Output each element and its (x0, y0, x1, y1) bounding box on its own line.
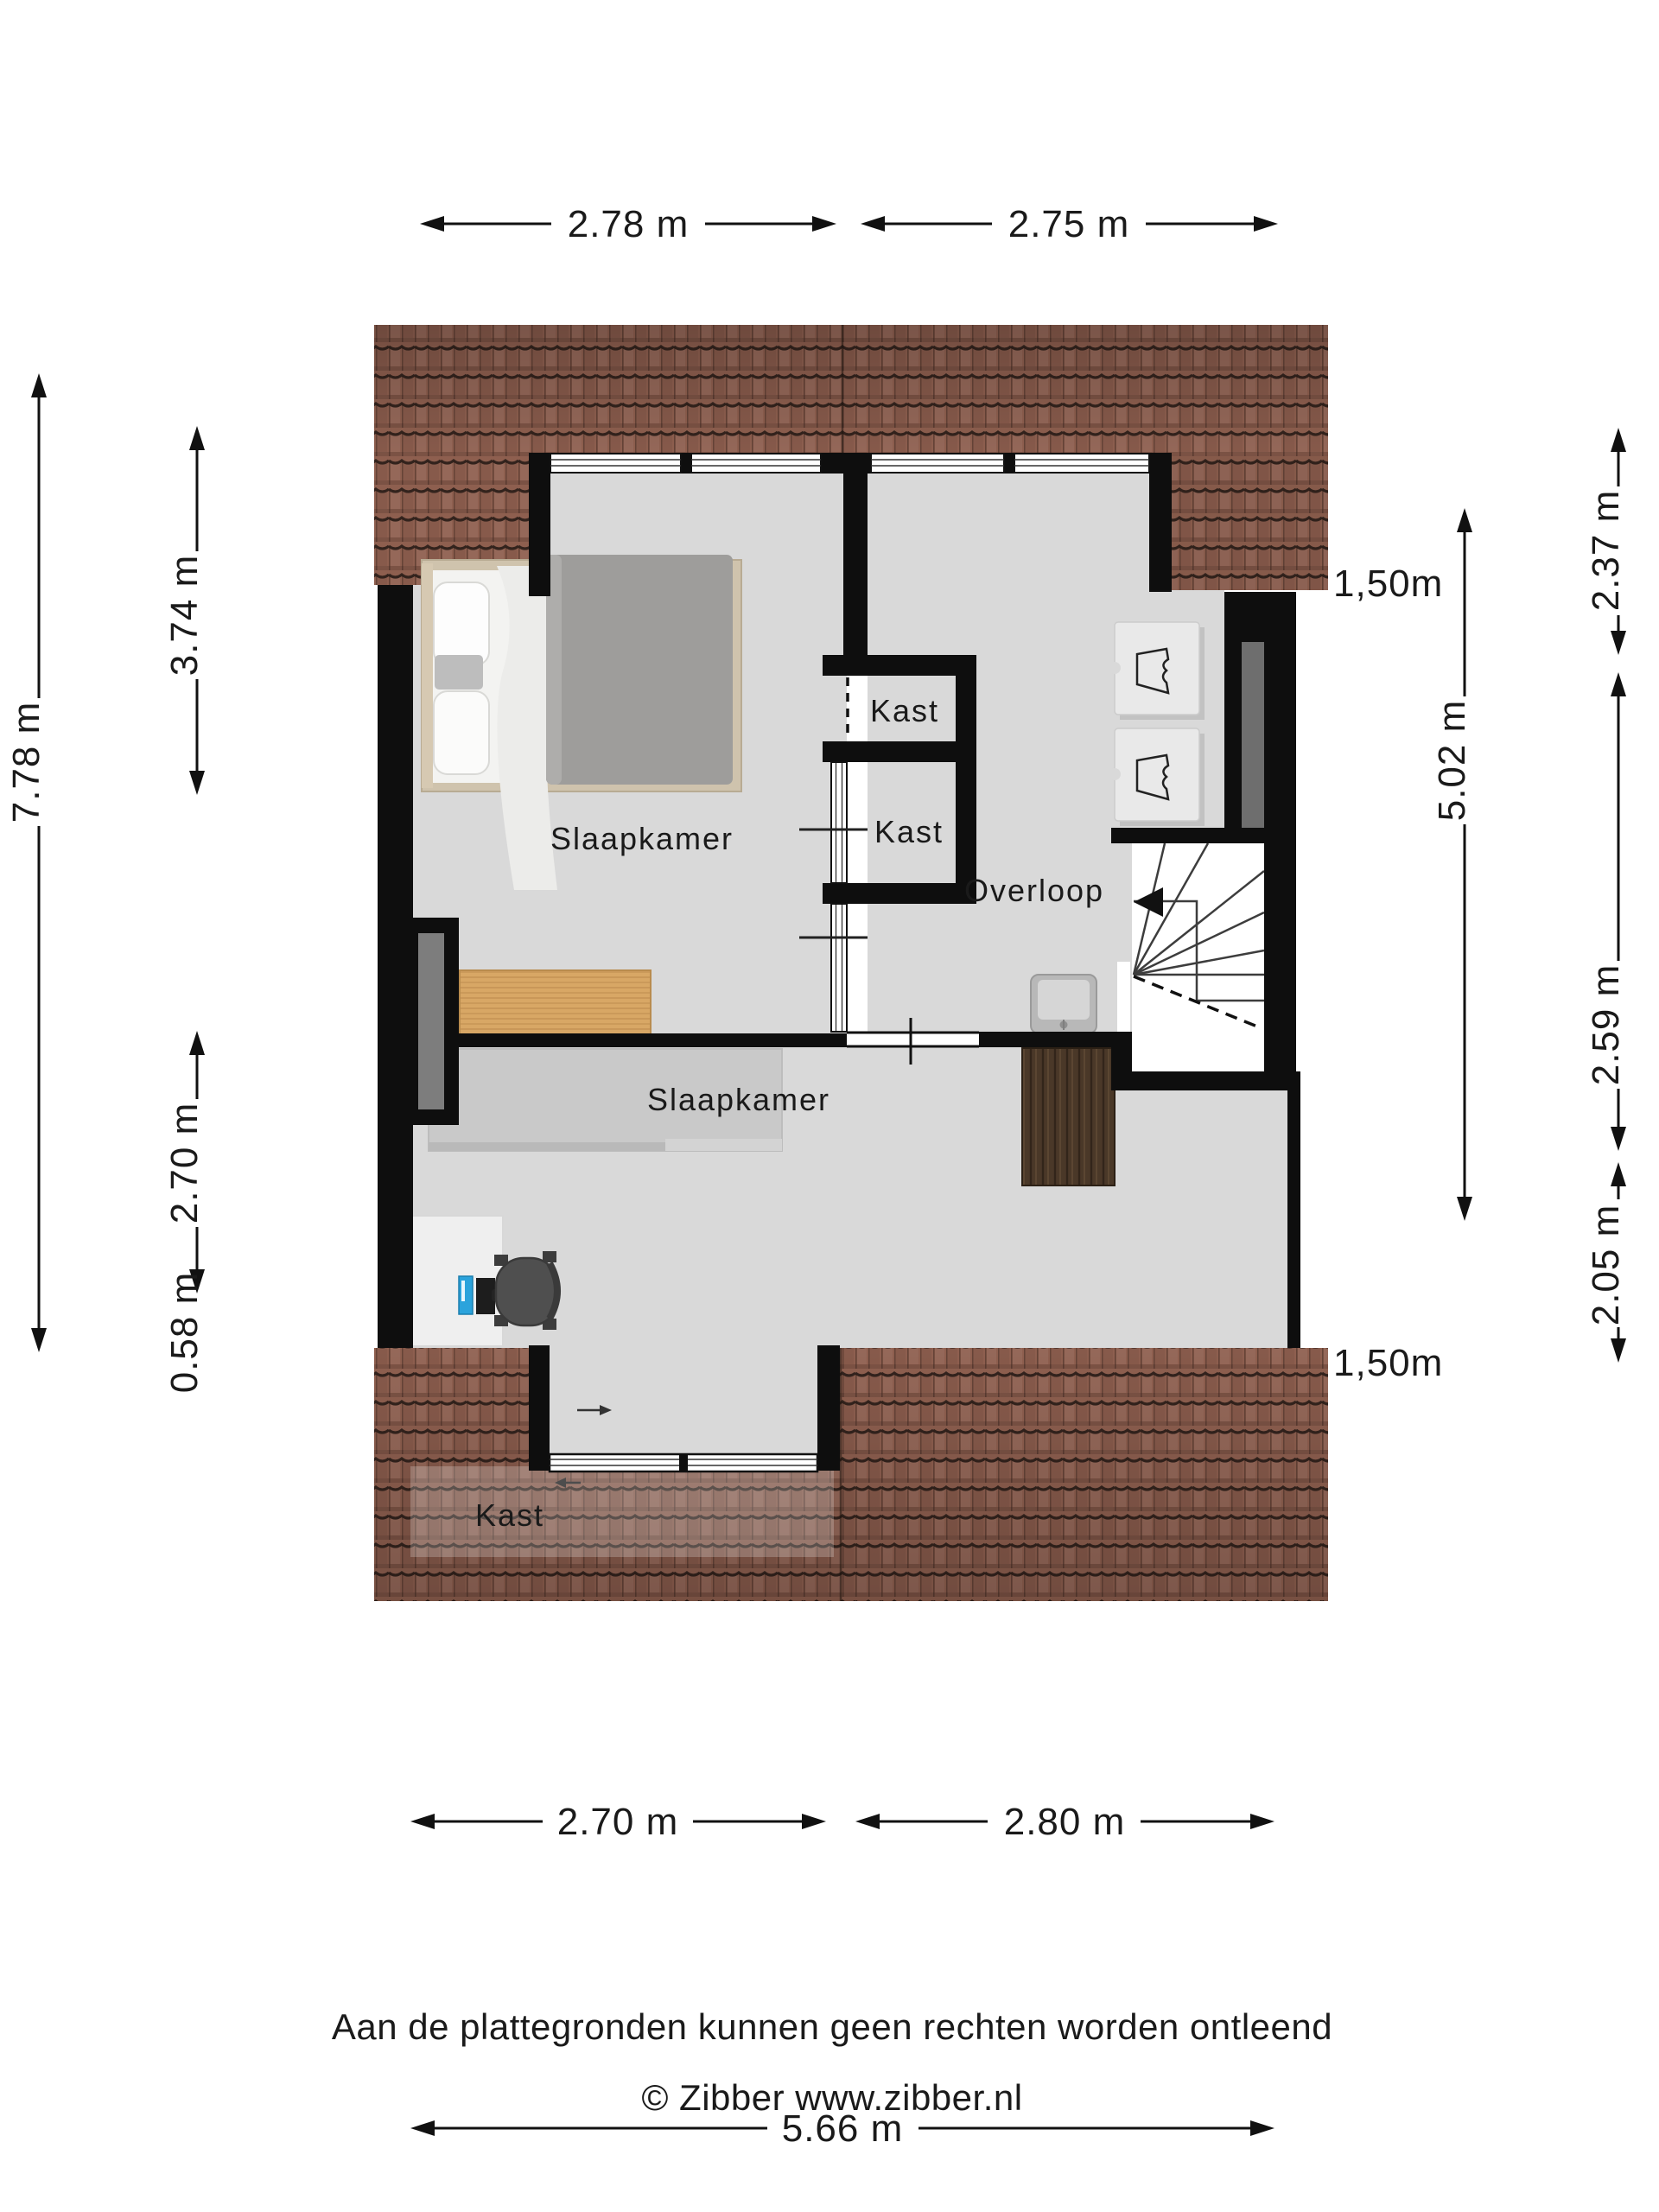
dim-left-outer: 7.78 m (5, 702, 48, 823)
skylight-window (1115, 622, 1199, 715)
pillow (434, 691, 489, 774)
dormer-jamb-right (817, 1345, 840, 1471)
room-label-landing: Overloop (964, 873, 1104, 908)
sideboard (460, 970, 651, 1034)
side-window-panel (418, 933, 444, 1109)
dim-left-inner-2: 2.70 m (163, 1103, 206, 1224)
dim-left-inner-3: 0.58 m (163, 1272, 206, 1394)
desk (412, 1216, 503, 1346)
wall-corner-right (1149, 471, 1172, 592)
dim-top-2: 2.75 m (1008, 203, 1130, 245)
dim-right-outer-2: 2.59 m (1585, 964, 1627, 1086)
footer-copyright: © Zibber www.zibber.nl (641, 2077, 1022, 2118)
computer-tower (459, 1276, 473, 1314)
wall-right-exterior (1264, 592, 1296, 1090)
wall-left-exterior (378, 585, 413, 1348)
floor-dormer-bay (550, 1348, 817, 1455)
dim-right-inner: 5.02 m (1431, 700, 1473, 822)
dormer-jamb-left (529, 1345, 550, 1471)
dim-bottom-1: 2.70 m (557, 1801, 679, 1843)
room-label-bedroom1: Slaapkamer (550, 821, 734, 856)
room-label-bedroom2: Slaapkamer (647, 1082, 830, 1117)
dim-top-1: 2.78 m (568, 203, 690, 245)
stairs (1117, 843, 1264, 1071)
closet-label-1: Kast (870, 693, 939, 728)
wall-partition (843, 471, 868, 655)
sink (1031, 975, 1096, 1033)
under-roof-storage (410, 1466, 834, 1557)
wall-corner-left (529, 471, 550, 596)
floorplan-canvas: Slaapkamer Slaapkamer Overloop Kast Kast… (0, 0, 1659, 2212)
side-window-panel-right (1242, 642, 1264, 828)
floor-bedroom2-right (1132, 1090, 1287, 1348)
dim-right-outer-3: 2.05 m (1585, 1205, 1627, 1326)
bed-headboard (422, 563, 433, 788)
stairs-entry (1117, 962, 1130, 1033)
bed-blanket (546, 555, 733, 785)
computer-tower-stripe (461, 1281, 465, 1301)
footer-disclaimer: Aan de plattegronden kunnen geen rechten… (332, 2006, 1332, 2047)
skylight-window (1115, 728, 1199, 821)
pillow (434, 582, 489, 665)
closet-label-3: Kast (475, 1497, 544, 1533)
dim-left-inner-1: 3.74 m (163, 555, 206, 677)
knee-wall-label-bottom: 1,50m (1333, 1342, 1443, 1384)
knee-wall-label-top: 1,50m (1333, 563, 1443, 605)
floor-landing-top (868, 471, 1149, 591)
closet-label-2: Kast (874, 814, 944, 849)
cabinet (1022, 1048, 1115, 1185)
dim-bottom-2: 2.80 m (1004, 1801, 1126, 1843)
bed-runner (435, 655, 483, 690)
window-bottom-bedroom2 (550, 1454, 817, 1471)
dim-right-outer-1: 2.37 m (1585, 490, 1627, 612)
wall-stairs-top (1111, 828, 1285, 843)
